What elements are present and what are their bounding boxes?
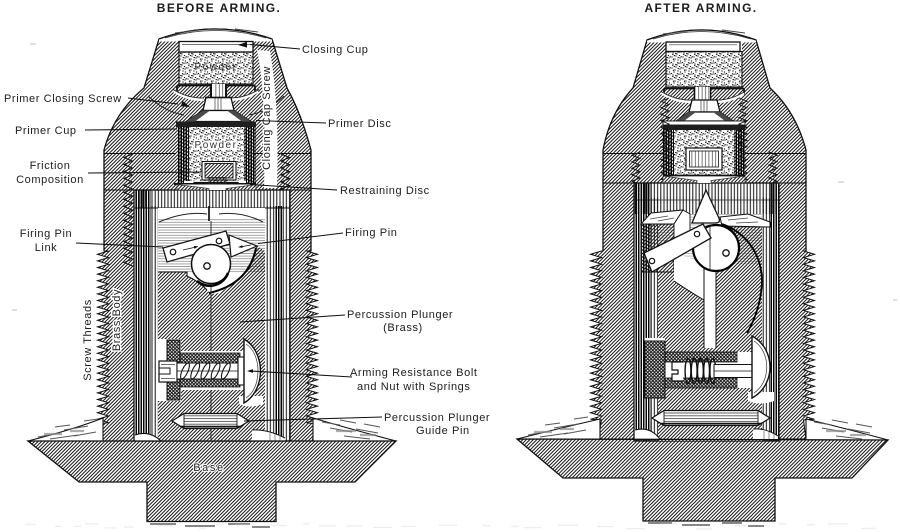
svg-text:Friction: Friction <box>30 160 71 172</box>
svg-text:Powder: Powder <box>195 140 238 151</box>
svg-text:Arming Resistance Bolt: Arming Resistance Bolt <box>350 367 478 379</box>
svg-text:Primer Disc: Primer Disc <box>328 118 391 130</box>
svg-text:Powder: Powder <box>195 62 238 73</box>
svg-text:Percussion Plunger: Percussion Plunger <box>347 309 453 321</box>
svg-text:AFTER ARMING.: AFTER ARMING. <box>644 1 757 15</box>
svg-text:(Brass): (Brass) <box>383 322 423 334</box>
svg-text:Screw Threads: Screw Threads <box>82 299 94 381</box>
svg-text:Firing Pin: Firing Pin <box>20 228 72 240</box>
svg-text:Closing Cap Screw: Closing Cap Screw <box>261 66 273 170</box>
svg-text:Closing Cup: Closing Cup <box>302 44 369 56</box>
svg-text:Firing Pin: Firing Pin <box>345 227 397 239</box>
svg-text:Primer Closing Screw: Primer Closing Screw <box>4 93 122 105</box>
svg-text:Link: Link <box>35 242 58 254</box>
svg-text:Brass Body: Brass Body <box>111 289 123 351</box>
svg-text:BEFORE ARMING.: BEFORE ARMING. <box>157 1 282 15</box>
svg-text:Restraining Disc: Restraining Disc <box>340 185 430 197</box>
svg-text:Guide Pin: Guide Pin <box>416 425 470 437</box>
svg-text:Composition: Composition <box>16 174 84 186</box>
svg-text:and Nut with Springs: and Nut with Springs <box>357 381 471 393</box>
svg-text:Percussion Plunger: Percussion Plunger <box>384 412 490 424</box>
svg-text:Base: Base <box>193 462 224 474</box>
svg-text:Primer Cup: Primer Cup <box>15 125 77 137</box>
